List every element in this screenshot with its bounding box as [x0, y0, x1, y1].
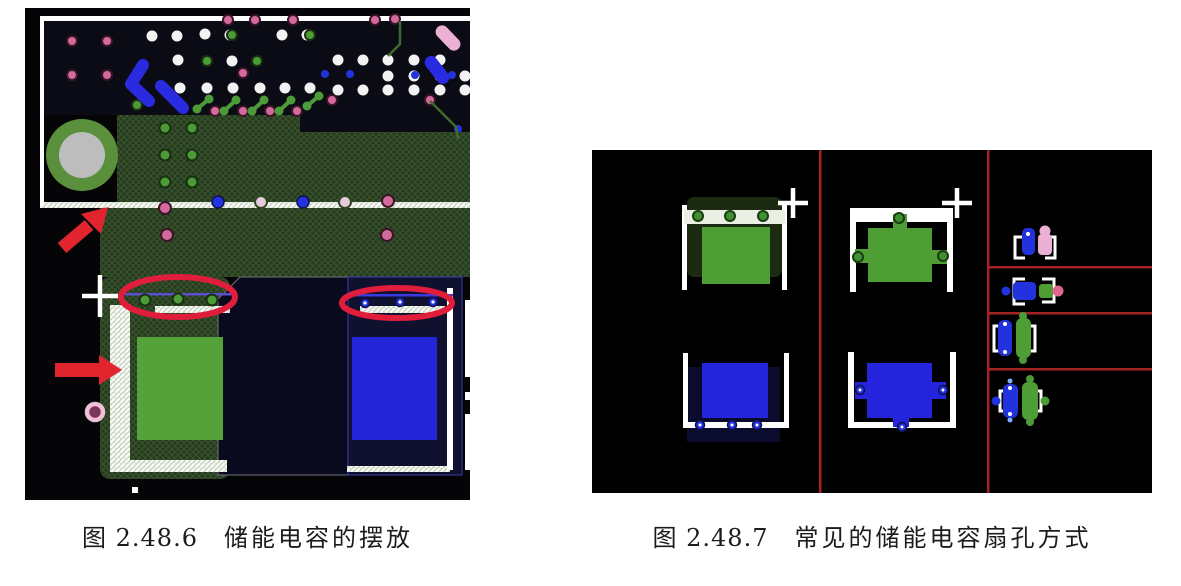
fanout-background — [592, 150, 1152, 493]
figure-fanout-patterns — [592, 150, 1152, 493]
figure-title-left: 储能电容的摆放 — [224, 524, 413, 552]
silkscreen-line-right — [447, 288, 453, 470]
figure-title-right: 常见的储能电容扇孔方式 — [794, 524, 1091, 552]
caption-right: 图 2.48.7常见的储能电容扇孔方式 — [592, 518, 1152, 558]
figure-capacitor-placement — [25, 8, 470, 500]
figure-number-left: 图 2.48.6 — [82, 524, 198, 552]
pcb-image-fanout — [592, 150, 1152, 493]
page: 图 2.48.6储能电容的摆放 图 2.48.7常见的储能电容扇孔方式 — [0, 0, 1181, 586]
figure-number-right: 图 2.48.7 — [653, 524, 769, 552]
caption-left: 图 2.48.6储能电容的摆放 — [25, 518, 470, 558]
pink-donut-via — [87, 404, 103, 420]
pcb-fanout-svg — [592, 150, 1152, 493]
pcb-image-placement — [25, 8, 470, 500]
blue-capacitor-pad — [352, 337, 437, 440]
mounting-hole-pad — [46, 119, 118, 191]
green-capacitor-pad — [137, 337, 223, 440]
pcb-placement-svg — [25, 8, 470, 500]
